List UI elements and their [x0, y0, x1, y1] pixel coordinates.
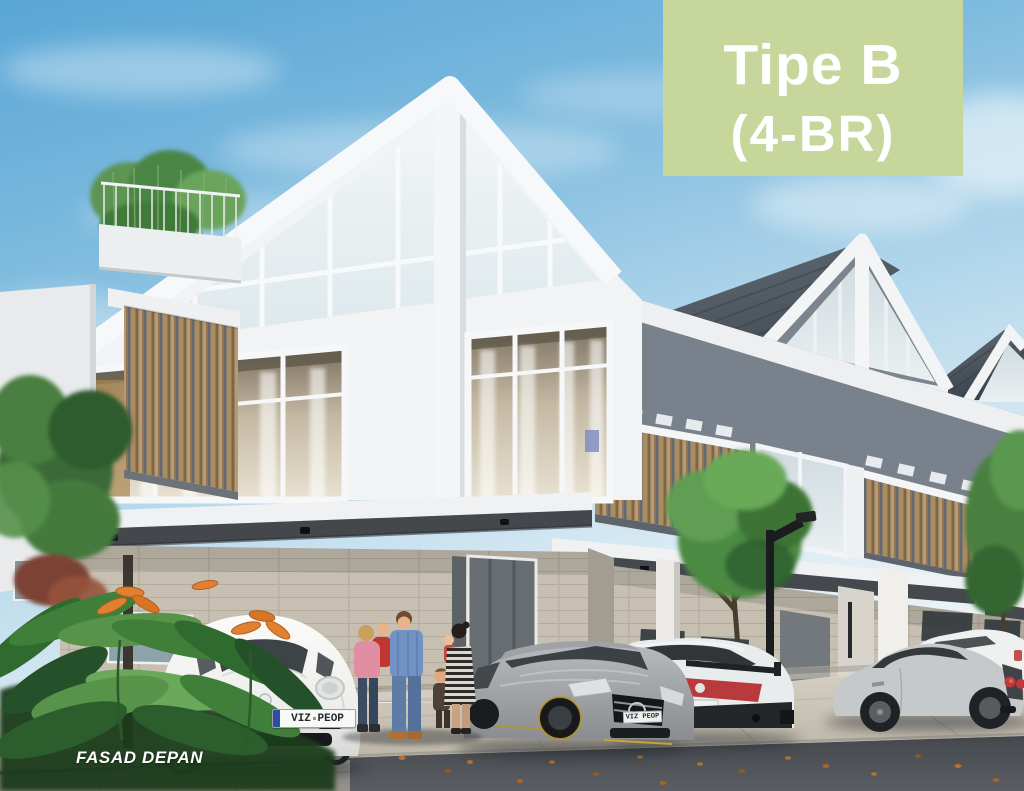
- facade-render-page: Tipe B (4-BR) FASAD DEPAN VIZ PEOP VIZ P…: [0, 0, 1024, 791]
- plate-eu-strip: [273, 710, 280, 727]
- plate-text: VIZ PEOP: [280, 713, 355, 725]
- plate-text: VIZ PEOP: [626, 712, 660, 721]
- beetle-license-plate: VIZ PEOP: [272, 709, 356, 728]
- badge-subtitle: (4-BR): [663, 104, 963, 163]
- door-handle: [848, 602, 852, 658]
- badge-title: Tipe B: [663, 32, 963, 98]
- plate-separator: [313, 717, 316, 720]
- downlight: [500, 519, 509, 525]
- type-badge: Tipe B (4-BR): [663, 0, 963, 176]
- wood-slat-panel-left: [108, 288, 240, 500]
- second-floor-window-right: [468, 323, 610, 500]
- hatchback-license-plate: VIZ PEOP: [623, 710, 662, 723]
- downlight: [300, 527, 310, 534]
- facade-caption: FASAD DEPAN: [76, 748, 203, 768]
